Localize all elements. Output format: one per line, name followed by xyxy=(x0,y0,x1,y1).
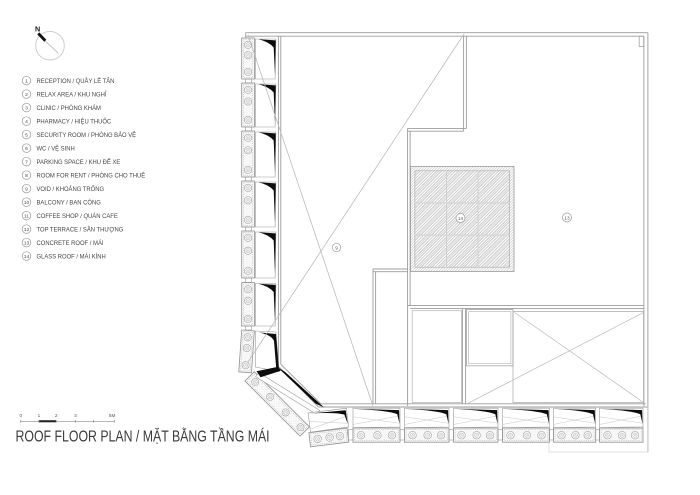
svg-text:10: 10 xyxy=(24,200,30,206)
svg-text:5M: 5M xyxy=(109,413,116,418)
svg-text:BALCONY / BAN CÔNG: BALCONY / BAN CÔNG xyxy=(37,197,101,207)
svg-text:GLASS ROOF / MÁI KÍNH: GLASS ROOF / MÁI KÍNH xyxy=(37,251,107,261)
svg-text:RELAX AREA / KHU NGHỈ: RELAX AREA / KHU NGHỈ xyxy=(37,89,107,99)
svg-text:2: 2 xyxy=(25,92,28,98)
svg-text:9: 9 xyxy=(25,186,28,192)
svg-text:9: 9 xyxy=(335,245,338,250)
svg-text:13: 13 xyxy=(24,240,30,246)
svg-text:13: 13 xyxy=(564,215,570,220)
svg-text:8: 8 xyxy=(25,173,28,179)
svg-text:0: 0 xyxy=(20,413,23,418)
svg-text:12: 12 xyxy=(24,227,30,233)
svg-text:ROOM FOR RENT / PHÒNG CHO THUÊ: ROOM FOR RENT / PHÒNG CHO THUÊ xyxy=(37,170,146,180)
svg-text:14: 14 xyxy=(458,216,464,221)
svg-text:CLINIC / PHÒNG KHÁM: CLINIC / PHÒNG KHÁM xyxy=(37,102,101,112)
svg-text:WC / VỆ SINH: WC / VỆ SINH xyxy=(37,143,76,153)
svg-text:11: 11 xyxy=(24,213,29,219)
svg-text:1: 1 xyxy=(38,413,41,418)
svg-text:SECURITY ROOM / PHÒNG BẢO VỆ: SECURITY ROOM / PHÒNG BẢO VỆ xyxy=(37,129,137,139)
svg-text:4: 4 xyxy=(25,119,28,125)
svg-text:14: 14 xyxy=(24,254,30,260)
svg-text:CONCRETE ROOF / MÁI: CONCRETE ROOF / MÁI xyxy=(37,237,104,247)
svg-text:N: N xyxy=(35,25,40,34)
svg-text:COFFEE SHOP / QUÁN CAFE: COFFEE SHOP / QUÁN CAFE xyxy=(37,210,118,220)
svg-text:3: 3 xyxy=(25,105,28,111)
svg-text:6: 6 xyxy=(25,146,28,152)
svg-text:TOP TERRACE / SÂN THƯỢNG: TOP TERRACE / SÂN THƯỢNG xyxy=(37,224,124,234)
svg-text:1: 1 xyxy=(25,78,28,84)
svg-text:PARKING SPACE / KHU ĐỂ XE: PARKING SPACE / KHU ĐỂ XE xyxy=(37,156,121,166)
svg-text:3: 3 xyxy=(74,413,77,418)
svg-text:5: 5 xyxy=(25,132,28,138)
svg-text:2: 2 xyxy=(55,413,58,418)
svg-text:ROOF FLOOR PLAN / MẶT BẰNG TẦN: ROOF FLOOR PLAN / MẶT BẰNG TẦNG MÁI xyxy=(16,426,270,445)
svg-text:7: 7 xyxy=(25,159,28,165)
